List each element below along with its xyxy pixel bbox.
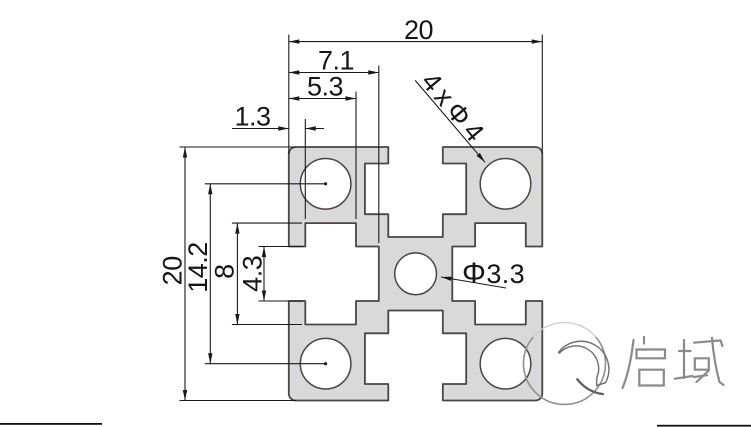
svg-text:8: 8 — [210, 264, 240, 279]
svg-text:Φ3.3: Φ3.3 — [462, 257, 525, 290]
svg-text:1.3: 1.3 — [234, 102, 270, 132]
svg-text:4xΦ4: 4xΦ4 — [415, 67, 493, 151]
svg-text:20: 20 — [404, 15, 433, 45]
svg-text:14.2: 14.2 — [183, 242, 213, 293]
svg-text:4.3: 4.3 — [238, 256, 268, 292]
svg-text:5.3: 5.3 — [307, 72, 343, 102]
